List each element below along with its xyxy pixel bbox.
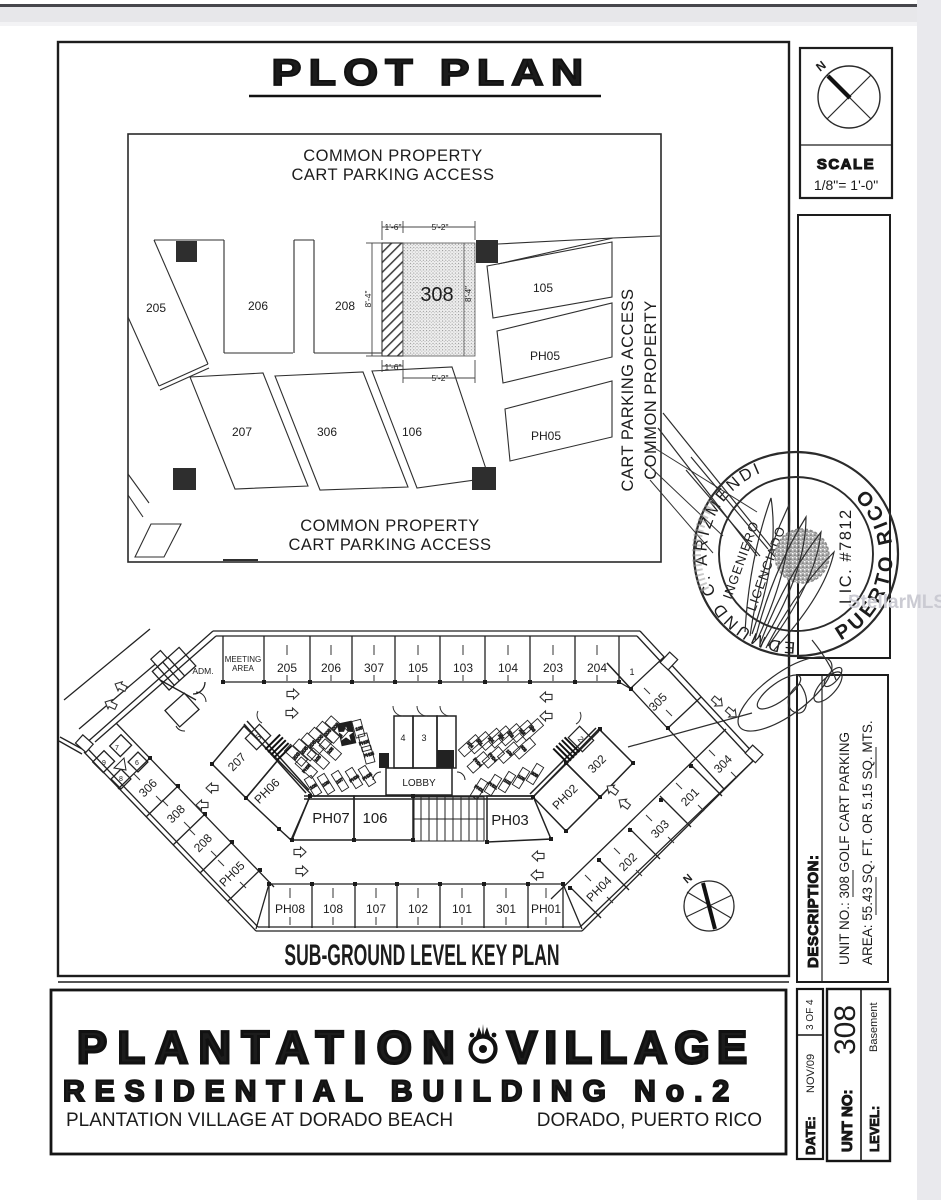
svg-text:207: 207	[232, 425, 252, 439]
svg-text:PH05: PH05	[530, 349, 560, 363]
svg-text:8'-4": 8'-4"	[363, 291, 373, 308]
svg-text:106: 106	[402, 425, 422, 439]
svg-text:SUB-GROUND LEVEL KEY PLAN: SUB-GROUND LEVEL KEY PLAN	[284, 939, 559, 972]
svg-text:CART PARKING ACCESS: CART PARKING ACCESS	[289, 536, 492, 554]
svg-text:DATE:: DATE:	[803, 1116, 818, 1155]
svg-text:5'-2": 5'-2"	[432, 222, 449, 232]
svg-text:VILLAGE: VILLAGE	[507, 1022, 755, 1073]
svg-text:206: 206	[321, 661, 341, 675]
svg-text:CART PARKING ACCESS: CART PARKING ACCESS	[619, 289, 637, 492]
svg-text:LOBBY: LOBBY	[402, 778, 436, 789]
svg-text:PH05: PH05	[531, 429, 561, 443]
svg-text:PH03: PH03	[491, 812, 529, 829]
svg-text:105: 105	[533, 281, 553, 295]
svg-text:MEETING: MEETING	[225, 655, 261, 664]
svg-text:3 OF 4: 3 OF 4	[805, 999, 816, 1030]
svg-text:1: 1	[629, 667, 634, 677]
svg-text:301: 301	[496, 902, 516, 916]
svg-text:8'-4": 8'-4"	[464, 286, 473, 302]
svg-text:5'-2": 5'-2"	[432, 373, 449, 383]
svg-text:306: 306	[317, 425, 337, 439]
svg-text:203: 203	[543, 661, 563, 675]
svg-text:PLOT PLAN: PLOT PLAN	[272, 52, 591, 93]
svg-text:308: 308	[829, 1005, 862, 1055]
svg-text:7: 7	[115, 745, 119, 752]
svg-text:SCALE: SCALE	[817, 156, 875, 173]
svg-text:108: 108	[323, 902, 343, 916]
svg-text:1/8"= 1'-0": 1/8"= 1'-0"	[814, 177, 878, 193]
svg-text:205: 205	[277, 661, 297, 675]
svg-text:103: 103	[453, 661, 473, 675]
svg-text:204: 204	[587, 661, 607, 675]
svg-text:3: 3	[421, 733, 426, 743]
svg-text:206: 206	[248, 299, 268, 313]
svg-text:101: 101	[452, 902, 472, 916]
svg-text:UNT NO:: UNT NO:	[839, 1090, 856, 1153]
svg-text:105: 105	[408, 661, 428, 675]
svg-text:104: 104	[498, 661, 518, 675]
svg-text:PLANTATION VILLAGE AT DORADO B: PLANTATION VILLAGE AT DORADO BEACH	[66, 1110, 453, 1131]
svg-text:PH07: PH07	[312, 810, 350, 827]
svg-text:AREA: 55.43 SQ. FT. OR: AREA: 55.43 SQ. FT. OR 5.15 SQ. MTS.	[860, 720, 875, 965]
svg-text:LIC. #7812: LIC. #7812	[837, 508, 855, 604]
svg-text:COMMON PROPERTY: COMMON PROPERTY	[303, 147, 483, 165]
svg-text:PH01: PH01	[531, 902, 561, 916]
svg-text:1'-6": 1'-6"	[385, 222, 402, 232]
svg-text:107: 107	[366, 902, 386, 916]
svg-text:RESIDENTIAL BUILDING No.2: RESIDENTIAL BUILDING No.2	[63, 1075, 739, 1108]
svg-text:DORADO, PUERTO RICO: DORADO, PUERTO RICO	[537, 1110, 762, 1131]
svg-text:205: 205	[146, 301, 166, 315]
svg-text:AREA: AREA	[232, 664, 254, 673]
svg-text:208: 208	[335, 299, 355, 313]
svg-text:COMMON PROPERTY: COMMON PROPERTY	[642, 300, 660, 480]
svg-text:106: 106	[362, 810, 387, 827]
svg-text:6: 6	[135, 760, 139, 767]
svg-text:1'-6": 1'-6"	[385, 362, 402, 372]
svg-text:StellarMLS: StellarMLS	[848, 592, 941, 613]
svg-text:4: 4	[400, 733, 405, 743]
svg-text:Basement: Basement	[868, 1002, 880, 1052]
svg-text:8: 8	[119, 776, 123, 783]
svg-text:PLANTATION: PLANTATION	[77, 1022, 465, 1073]
svg-text:DESCRIPTION:: DESCRIPTION:	[805, 854, 822, 968]
svg-text:9: 9	[102, 760, 106, 767]
svg-text:LEVEL:: LEVEL:	[867, 1106, 882, 1152]
svg-text:PH08: PH08	[275, 902, 305, 916]
svg-text:307: 307	[364, 661, 384, 675]
svg-text:COMMON PROPERTY: COMMON PROPERTY	[300, 517, 480, 535]
svg-text:ADM.: ADM.	[192, 666, 213, 676]
svg-text:308: 308	[420, 284, 453, 306]
svg-text:NOV/09: NOV/09	[805, 1054, 817, 1093]
svg-text:UNIT NO.: 308 GOLF CART PAR: UNIT NO.: 308 GOLF CART PARKING	[837, 732, 852, 965]
svg-text:CART PARKING ACCESS: CART PARKING ACCESS	[292, 166, 495, 184]
svg-text:102: 102	[408, 902, 428, 916]
